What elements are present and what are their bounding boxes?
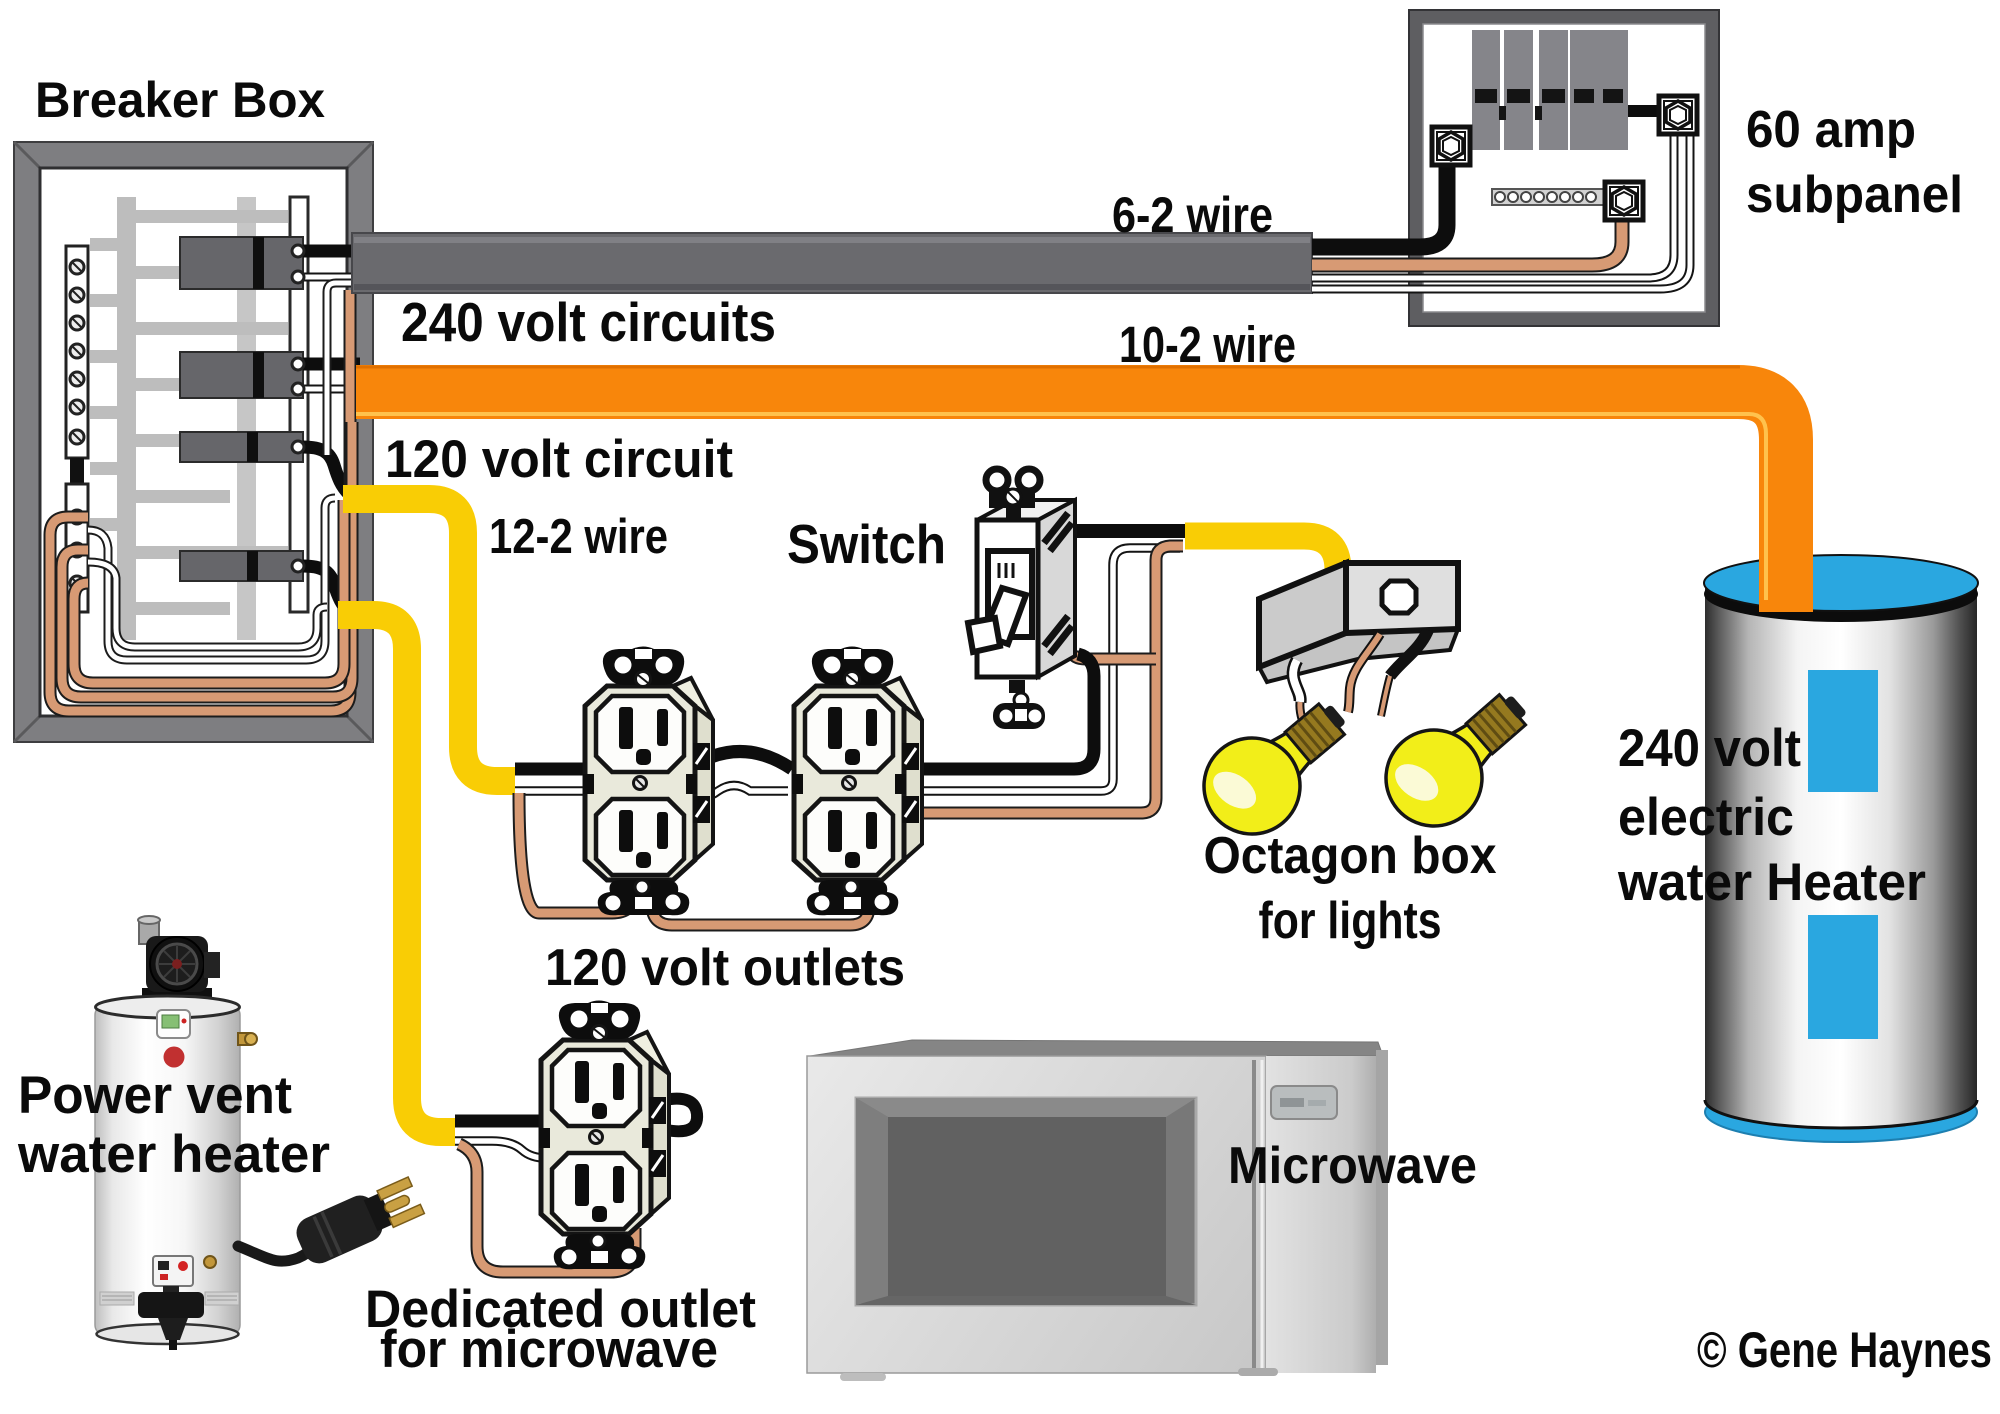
svg-text:Microwave: Microwave [1228,1137,1477,1195]
svg-text:10-2 wire: 10-2 wire [1119,316,1296,373]
svg-text:for lights: for lights [1259,892,1442,950]
svg-text:water Heater: water Heater [1617,853,1926,912]
svg-text:© Gene Haynes: © Gene Haynes [1697,1322,1992,1378]
svg-text:electric: electric [1618,788,1794,847]
svg-text:120 volt outlets: 120 volt outlets [545,939,905,997]
svg-text:120 volt circuit: 120 volt circuit [385,430,733,489]
svg-text:for microwave: for microwave [380,1320,718,1379]
svg-text:240 volt: 240 volt [1618,719,1801,778]
svg-text:60 amp: 60 amp [1746,101,1916,159]
svg-text:240 volt circuits: 240 volt circuits [401,291,776,353]
svg-text:Breaker Box: Breaker Box [35,72,325,128]
svg-text:Power vent: Power vent [18,1066,292,1125]
svg-text:Octagon box: Octagon box [1204,827,1497,885]
svg-text:subpanel: subpanel [1746,166,1963,224]
svg-text:12-2 wire: 12-2 wire [489,510,668,564]
svg-text:water heater: water heater [17,1125,330,1184]
svg-text:6-2 wire: 6-2 wire [1112,187,1273,243]
svg-text:Switch: Switch [787,513,946,575]
